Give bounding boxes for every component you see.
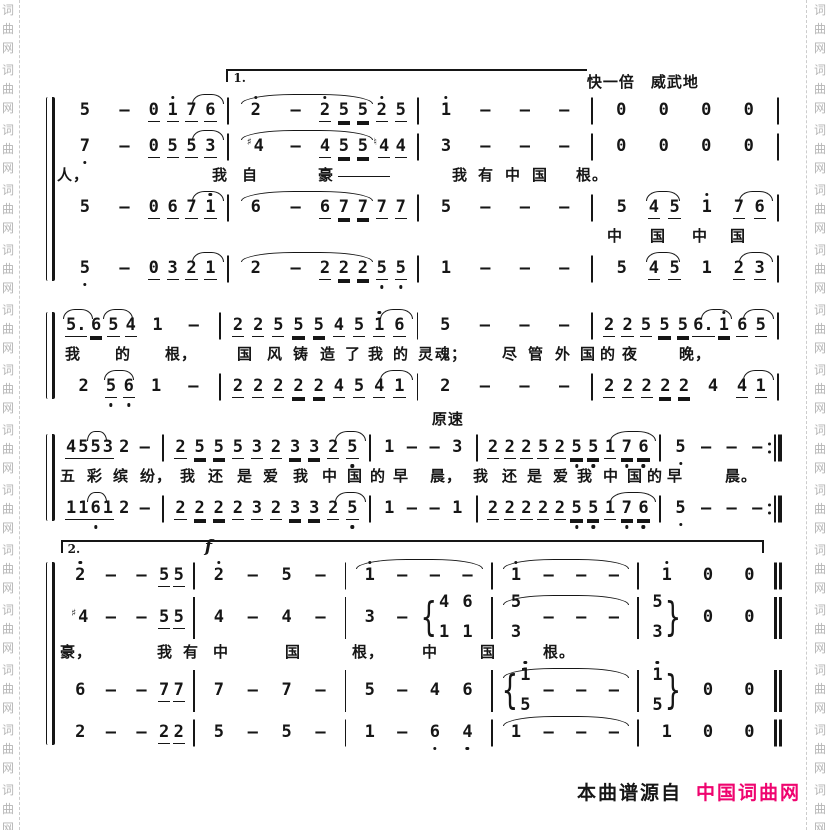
note-digit: 4 <box>395 137 407 158</box>
sheet-music-page: 词曲网词曲网词曲网词曲网词曲网词曲网词曲网词曲网词曲网词曲网词曲网词曲网词曲网词… <box>0 0 830 830</box>
lyric-syllable: 纷， <box>140 469 172 484</box>
lyric-syllable: 国 <box>650 229 666 244</box>
note-token: 2 <box>232 499 244 520</box>
note-token: 4 <box>391 137 410 158</box>
note-token: 2 <box>228 316 248 337</box>
note-token: 0 <box>148 101 160 122</box>
note-token: – <box>744 438 770 458</box>
note-token: 2 <box>232 316 244 337</box>
note-digit: – <box>314 608 326 628</box>
barline-thin <box>774 496 776 523</box>
slur-arc <box>87 431 107 441</box>
measure: 1––– <box>492 715 638 751</box>
note-token: – <box>479 137 491 157</box>
note-digit: 1 <box>461 623 473 643</box>
note-token: 2 <box>621 316 633 337</box>
note-digit: – <box>118 198 130 218</box>
note-token: 3 <box>510 623 522 643</box>
note-token: – <box>304 681 338 701</box>
note-token: 2 <box>65 723 96 743</box>
note-token: 2 <box>174 499 186 520</box>
watermark-text: 词 <box>814 604 826 616</box>
note-digit: – <box>479 377 491 397</box>
lyric-syllable: 我 <box>452 168 468 183</box>
note-digit: – <box>188 316 200 336</box>
measure: 0000 <box>592 93 778 129</box>
slur-arc <box>335 492 366 502</box>
note-digit: 2 <box>659 377 671 398</box>
lyric-syllable: 的 <box>115 347 131 362</box>
note-digit: – <box>575 566 587 586</box>
note-token: 0 <box>148 137 160 158</box>
lyric-syllable: 国 <box>532 168 548 183</box>
note-digit: 7 <box>173 681 185 702</box>
note-token: 0 <box>700 101 712 121</box>
note-token: – <box>276 259 316 279</box>
note-digit: 4 <box>65 438 77 459</box>
note-digit: 5 <box>640 316 652 337</box>
note-digit: 2 <box>252 377 264 398</box>
note-token: 5 <box>292 316 304 337</box>
watermark-text: 词 <box>814 304 826 316</box>
note-digit: 2 <box>213 499 225 520</box>
note-digit: 1 <box>167 101 179 122</box>
note-token: 1 <box>446 499 469 519</box>
note-digit: 6 <box>429 723 441 743</box>
note-digit: 7 <box>158 681 170 702</box>
watermark-column-left: 词曲网词曲网词曲网词曲网词曲网词曲网词曲网词曲网词曲网词曲网词曲网词曲网词曲网词… <box>0 0 16 830</box>
note-token: 2 <box>501 499 518 520</box>
watermark-text: 曲 <box>814 623 826 635</box>
lyric-syllable: 夜 <box>622 347 638 362</box>
watermark-text: 网 <box>814 222 826 234</box>
note-digit: – <box>396 566 408 586</box>
watermark-text: 曲 <box>2 803 14 815</box>
note-digit: 7 <box>395 198 407 219</box>
note-token: 5 <box>376 259 388 280</box>
note-token: 1 <box>163 101 182 122</box>
note-token: 1 <box>701 259 713 279</box>
note-token: 5 <box>272 316 284 337</box>
barline <box>779 670 782 712</box>
note-token: 2 <box>659 377 671 398</box>
note-token: 5 <box>65 101 105 121</box>
note-token: 4 <box>333 316 345 337</box>
note-digit: 2 <box>74 723 86 743</box>
note-digit: 1 <box>510 723 522 743</box>
note-token: – <box>558 259 570 279</box>
note-token: 4 <box>419 681 452 701</box>
note-token: – <box>105 137 145 157</box>
music-system: 1.快一倍 威武地5–01762–255251–––00007–0553♯4–4… <box>57 65 778 287</box>
note-token: 2 <box>250 101 262 121</box>
note-digit: 5 <box>616 198 628 218</box>
music-row: 2561–2222245412–––22222441 <box>57 369 778 405</box>
watermark-text: 网 <box>814 582 826 594</box>
note-token: 0 <box>687 566 728 586</box>
measure: 2––22 <box>57 715 194 751</box>
lyric-syllable: 管 <box>528 347 544 362</box>
note-token: – <box>188 316 200 336</box>
slur-arc <box>192 191 223 201</box>
note-token: 2 <box>554 438 566 459</box>
slur-arc <box>192 252 223 262</box>
note-digit: 2 <box>232 499 244 520</box>
note-digit: – <box>289 259 301 279</box>
note-token: – <box>401 499 424 519</box>
note-token: 2 <box>65 566 96 586</box>
note-token: – <box>726 499 738 519</box>
octave-dot-below <box>679 523 682 526</box>
chord-stack: 15 <box>651 666 663 716</box>
note-digit: – <box>700 438 712 458</box>
note-token: 3 <box>305 438 324 459</box>
measure: 6–67777 <box>228 190 418 226</box>
note-token: 2 <box>171 499 190 520</box>
note-digit: 4 <box>429 681 441 701</box>
note-token: 7 <box>79 137 91 157</box>
lyric-syllable: 魂； <box>435 347 467 362</box>
note-token: – <box>406 499 418 519</box>
watermark-text: 网 <box>2 282 14 294</box>
barline <box>777 374 779 401</box>
note-token: 0 <box>687 681 728 701</box>
tempo-marking: 原速 <box>432 408 464 429</box>
note-token: 0 <box>743 681 755 701</box>
note-digit: – <box>135 566 147 586</box>
note-token: 0 <box>743 608 755 628</box>
note-digit: – <box>558 316 570 336</box>
note-token: 15} <box>646 666 687 716</box>
note-digit: – <box>558 101 570 121</box>
measure: 1––– <box>418 251 592 287</box>
note-digit: – <box>118 259 130 279</box>
note-digit: 2 <box>174 438 186 459</box>
note-token: – <box>247 608 259 628</box>
note-digit: 2 <box>158 723 170 744</box>
note-token: – <box>118 198 130 218</box>
watermark-text: 网 <box>814 402 826 414</box>
music-row: 45532–25553233251––322252551765––– <box>57 430 778 466</box>
measure: 53––– <box>492 594 638 642</box>
note-token: 0 <box>729 608 770 628</box>
lyrics-row: 豪，我有中国根，中国根。 <box>57 642 778 667</box>
note-token: – <box>598 681 631 701</box>
lyric-syllable: 国 <box>347 469 363 484</box>
watermark-text: 网 <box>2 702 14 714</box>
note-digit: 0 <box>743 723 755 743</box>
note-token: – <box>719 438 745 458</box>
note-token: – <box>175 377 212 397</box>
note-token: 3 <box>251 438 263 459</box>
note-token: – <box>565 681 598 701</box>
note-token: 7 <box>213 681 225 701</box>
note-digit: 1 <box>701 198 713 218</box>
watermark-text: 网 <box>814 642 826 654</box>
note-digit: 4 <box>707 377 719 397</box>
note-token: 1 <box>661 566 673 586</box>
note-token: 1 <box>426 259 465 279</box>
lyric-syllable: 早 <box>393 469 409 484</box>
music-row: 5–03212–222551–––545123 <box>57 251 778 287</box>
note-token: 2 <box>554 499 566 520</box>
watermark-text: 曲 <box>2 683 14 695</box>
note-digit: 5 <box>79 259 91 279</box>
measure: 0000 <box>592 129 778 165</box>
barline <box>774 597 777 639</box>
note-token: 0 <box>642 101 685 121</box>
note-token: 3 <box>308 499 320 520</box>
note-digit: 1 <box>364 723 376 743</box>
note-token: 0 <box>743 137 755 157</box>
note-token: – <box>423 499 446 519</box>
note-token: 2 <box>551 499 568 520</box>
note-digit: 5 <box>651 696 663 716</box>
measure: 5.6541– <box>57 308 220 344</box>
dynamic-marking: f <box>205 537 212 557</box>
note-token: 4 <box>329 377 349 398</box>
note-token: – <box>532 566 565 586</box>
note-digit: 0 <box>743 681 755 701</box>
watermark-text: 网 <box>814 462 826 474</box>
note-token: 5 <box>79 259 91 279</box>
note-token: 5 <box>600 259 644 279</box>
note-digit: 2 <box>537 499 549 520</box>
note-digit: 5 <box>213 438 225 459</box>
note-token: – <box>304 608 338 628</box>
note-token: – <box>96 566 127 586</box>
note-token: – <box>135 499 156 519</box>
chord-note: 4 <box>438 593 450 613</box>
watermark-border-left <box>19 0 20 830</box>
note-token: – <box>565 608 598 628</box>
slur-arc <box>63 309 93 319</box>
note-token: 1 <box>685 259 729 279</box>
note-digit: 3 <box>289 438 301 459</box>
note-token: – <box>608 723 620 743</box>
note-token: 1 <box>440 259 452 279</box>
note-token: – <box>176 316 212 336</box>
note-digit: 0 <box>148 101 160 122</box>
note-token: – <box>726 438 738 458</box>
note-digit: 2 <box>504 499 516 520</box>
note-token: 2 <box>425 377 465 397</box>
watermark-text: 曲 <box>2 203 14 215</box>
note-token: 7 <box>158 681 170 702</box>
note-digit: – <box>429 566 441 586</box>
note-digit: – <box>479 198 491 218</box>
note-token: 2 <box>65 377 102 397</box>
note-token: – <box>598 608 631 628</box>
watermark-text: 曲 <box>814 323 826 335</box>
note-token: 1 <box>701 198 713 218</box>
tempo-marking: 快一倍 威武地 <box>587 71 699 92</box>
measure: 1––– <box>492 558 638 594</box>
note-digit: – <box>135 723 147 743</box>
lyric-syllable: 国 <box>580 347 596 362</box>
note-digit: 2 <box>621 316 633 337</box>
note-token: 1 <box>500 566 533 586</box>
octave-dot-below <box>642 525 645 528</box>
note-token: – <box>700 499 712 519</box>
watermark-text: 网 <box>2 342 14 354</box>
note-digit: 2 <box>213 566 225 586</box>
lyric-syllable: 中 <box>213 645 229 660</box>
octave-dot-above <box>705 193 708 196</box>
note-digit: – <box>608 681 620 701</box>
note-digit: – <box>396 723 408 743</box>
note-digit: 1 <box>701 259 713 279</box>
music-system: 原速45532–25553233251––322252551765–––五彩缤纷… <box>57 410 778 527</box>
note-token: 7 <box>372 198 391 219</box>
measure: 1––1 <box>370 491 477 527</box>
note-token: – <box>505 259 544 279</box>
note-token: – <box>105 259 145 279</box>
lyric-syllable: 铸 <box>293 347 309 362</box>
note-token: – <box>519 101 531 121</box>
watermark-text: 词 <box>2 424 14 436</box>
watermark-text: 网 <box>814 762 826 774</box>
lyric-syllable: 中 <box>505 168 521 183</box>
note-digit: 1 <box>383 438 395 458</box>
measure: 5–0321 <box>57 251 228 287</box>
note-token: 5 <box>651 696 663 716</box>
note-token: 3 <box>353 608 386 628</box>
note-digit: 3 <box>308 499 320 520</box>
note-digit: 2 <box>252 316 264 337</box>
lyric-syllable: 尽 <box>502 347 518 362</box>
measure: 6––77 <box>57 667 194 715</box>
measure: ♯4––55 <box>57 594 194 642</box>
note-token: 7 <box>202 681 236 701</box>
measure: ♯4–455♮44 <box>228 129 418 165</box>
watermark-text: 词 <box>2 364 14 376</box>
watermark-text: 词 <box>814 484 826 496</box>
lyric-syllable: 风 <box>267 347 283 362</box>
note-token: 2 <box>266 499 285 520</box>
note-digit: 4 <box>333 377 345 398</box>
note-token: 2 <box>118 438 130 458</box>
note-digit: – <box>479 137 491 157</box>
octave-dot-below <box>679 462 682 465</box>
watermark-text: 词 <box>814 64 826 76</box>
note-digit: 2 <box>603 316 615 337</box>
note-token: – <box>236 566 270 586</box>
note-digit: – <box>406 499 418 519</box>
lyric-syllable: 中 <box>603 469 619 484</box>
measure: 5––– <box>660 430 778 466</box>
note-token: 3 <box>286 499 305 520</box>
note-digit: 2 <box>232 377 244 398</box>
note-token: 5 <box>585 438 602 459</box>
watermark-text: 词 <box>814 4 826 16</box>
barline-thick <box>778 496 782 523</box>
watermark-text: 网 <box>2 42 14 54</box>
note-digit: 0 <box>743 608 755 628</box>
note-token: – <box>105 723 117 743</box>
note-token: – <box>428 499 440 519</box>
note-token: 0 <box>743 723 755 743</box>
note-digit: 5 <box>353 377 365 398</box>
lyric-syllable: 彩 <box>87 469 103 484</box>
lyric-syllable: 是 <box>237 469 253 484</box>
watermark-text: 词 <box>814 784 826 796</box>
note-token: 4 <box>429 681 441 701</box>
note-token: 5 <box>232 438 244 459</box>
note-token: – <box>751 438 763 458</box>
watermark-text: 曲 <box>2 563 14 575</box>
watermark-text: 网 <box>2 822 14 830</box>
note-digit: 7 <box>213 681 225 701</box>
note-token: – <box>289 137 301 157</box>
measure: 1––– <box>345 558 491 594</box>
repeat-barline <box>768 435 782 462</box>
note-digit: – <box>139 499 151 519</box>
note-digit: 3 <box>251 499 263 520</box>
watermark-text: 曲 <box>2 83 14 95</box>
note-token: – <box>105 198 145 218</box>
note-digit: – <box>519 198 531 218</box>
note-digit: 5 <box>658 316 670 337</box>
watermark-text: 曲 <box>2 143 14 155</box>
note-token: 5 <box>270 566 304 586</box>
watermark-text: 网 <box>2 162 14 174</box>
note-digit: 5 <box>587 438 599 459</box>
slur-arc <box>743 370 774 380</box>
volta-bracket: 2. <box>61 540 764 553</box>
note-token: 2 <box>173 723 185 744</box>
measure: 2––55 <box>57 558 194 594</box>
note-token: – <box>479 377 491 397</box>
note-token: – <box>543 681 555 701</box>
watermark-text: 词 <box>2 724 14 736</box>
note-digit: 1 <box>661 566 673 586</box>
note-token: 2 <box>520 499 532 520</box>
note-digit: 0 <box>615 101 627 121</box>
note-token: 5 <box>270 723 304 743</box>
note-token: 5 <box>157 566 172 587</box>
note-token: 5 <box>281 566 293 586</box>
lyric-syllable: 我 <box>157 645 173 660</box>
note-digit: – <box>187 377 199 397</box>
note-token: 0 <box>658 101 670 121</box>
note-digit: 5 <box>376 259 388 280</box>
lyric-syllable: 豪， <box>60 645 92 660</box>
note-token: 5 <box>173 608 185 629</box>
note-digit: 4 <box>333 316 345 337</box>
note-token: – <box>545 259 584 279</box>
watermark-text: 网 <box>814 42 826 54</box>
slur-arc <box>104 370 133 380</box>
note-token: – <box>558 316 570 336</box>
note-token: – <box>118 137 130 157</box>
note-token: 1 <box>151 316 163 336</box>
measure: 2561– <box>57 369 220 405</box>
watermark-text: 词 <box>2 64 14 76</box>
note-token: – <box>479 198 491 218</box>
note-token: – <box>532 681 565 701</box>
note-digit: 0 <box>743 137 755 157</box>
note-token: 2 <box>268 377 288 398</box>
chord-note: 1 <box>461 623 473 643</box>
note-token: 5 <box>288 316 308 337</box>
note-token: 5 <box>268 316 288 337</box>
octave-dot-below <box>351 525 354 528</box>
note-token: – <box>126 566 157 586</box>
watermark-text: 网 <box>2 522 14 534</box>
note-token: 1 <box>353 723 386 743</box>
slur-arc <box>503 716 629 726</box>
